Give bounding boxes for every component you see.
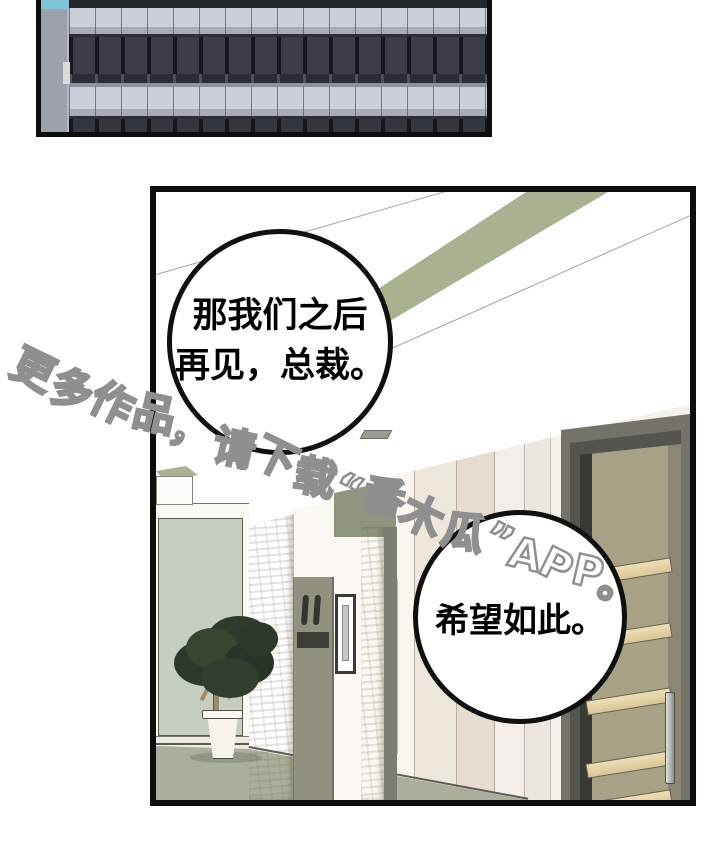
- sky-sliver: [41, 0, 69, 9]
- plant-pot-rim: [202, 710, 243, 719]
- facade-window-row: [69, 37, 487, 74]
- panel-handle: [301, 595, 309, 625]
- wall-sign-display: [342, 605, 349, 661]
- speech-text-1: 那我们之后 再见，总裁。: [175, 292, 385, 391]
- building-facade-panel: [36, 0, 492, 137]
- speech-text-2: 希望如此。: [435, 593, 605, 642]
- divider-shadow-edge: [384, 527, 397, 800]
- facade-spandrel: [69, 74, 487, 83]
- panel-handle: [313, 595, 321, 625]
- facade-mid-band: [69, 27, 487, 34]
- stone-pillar-right: [361, 527, 385, 800]
- facade-dark-strip: [69, 0, 487, 8]
- building-facade: [69, 0, 487, 132]
- intercom-panel: [293, 577, 334, 800]
- wall-sign: [335, 594, 356, 674]
- potted-plant: [156, 592, 286, 792]
- column-highlight: [63, 62, 70, 84]
- ceiling-vent: [360, 430, 393, 439]
- building-corner-column: [41, 0, 69, 132]
- facade-light-band: [69, 87, 487, 109]
- door-handle: [665, 692, 675, 784]
- facade-mid-band: [69, 109, 487, 116]
- ceiling-soffit: [156, 476, 193, 505]
- speech-bubble-2: 希望如此。: [413, 510, 627, 724]
- facade-light-band: [69, 8, 487, 27]
- panel-plaque: [297, 632, 329, 648]
- plant-foliage: [201, 658, 259, 698]
- facade-window-row: [69, 119, 487, 132]
- speech-bubble-1: 那我们之后 再见，总裁。: [167, 229, 393, 455]
- plant-foliage: [238, 622, 278, 656]
